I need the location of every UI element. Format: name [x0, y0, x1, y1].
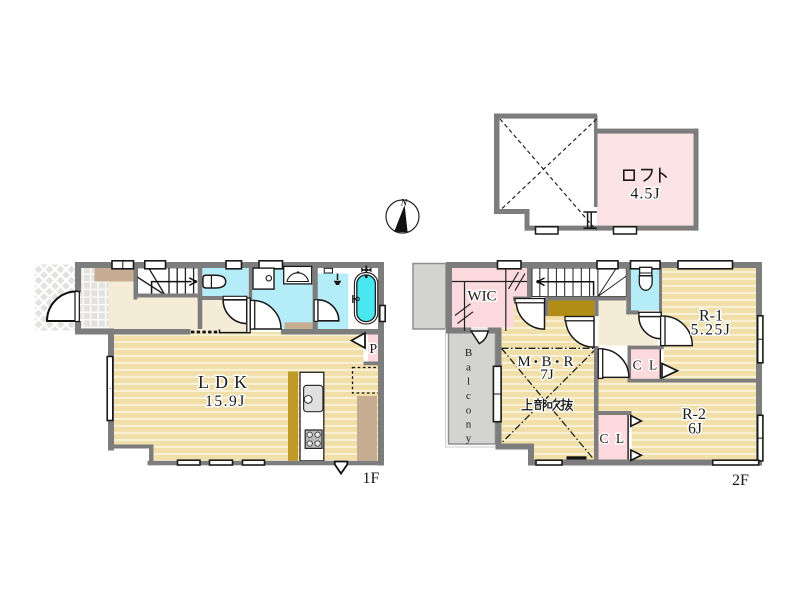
svg-text:a: a: [466, 362, 471, 374]
svg-text:R: R: [563, 354, 573, 370]
svg-text:N: N: [400, 198, 408, 208]
svg-text:l: l: [467, 376, 470, 388]
svg-text:c: c: [466, 390, 471, 402]
svg-text:C L: C L: [599, 431, 626, 446]
svg-text:7J: 7J: [540, 367, 554, 383]
svg-text:LDK: LDK: [198, 372, 253, 392]
svg-text:6J: 6J: [688, 421, 702, 438]
svg-text:M: M: [517, 354, 530, 370]
svg-text:y: y: [466, 433, 472, 445]
svg-text:n: n: [466, 419, 472, 431]
svg-text:1F: 1F: [363, 470, 380, 487]
svg-text:4.5J: 4.5J: [630, 186, 660, 203]
svg-text:P: P: [369, 342, 377, 357]
svg-text:5.25J: 5.25J: [691, 322, 732, 339]
svg-text:C L: C L: [633, 358, 660, 373]
svg-text:2F: 2F: [732, 472, 749, 489]
svg-text:B: B: [465, 347, 472, 359]
svg-text:15.9J: 15.9J: [205, 393, 246, 410]
svg-text:o: o: [466, 405, 472, 417]
svg-text:WIC: WIC: [467, 289, 496, 305]
